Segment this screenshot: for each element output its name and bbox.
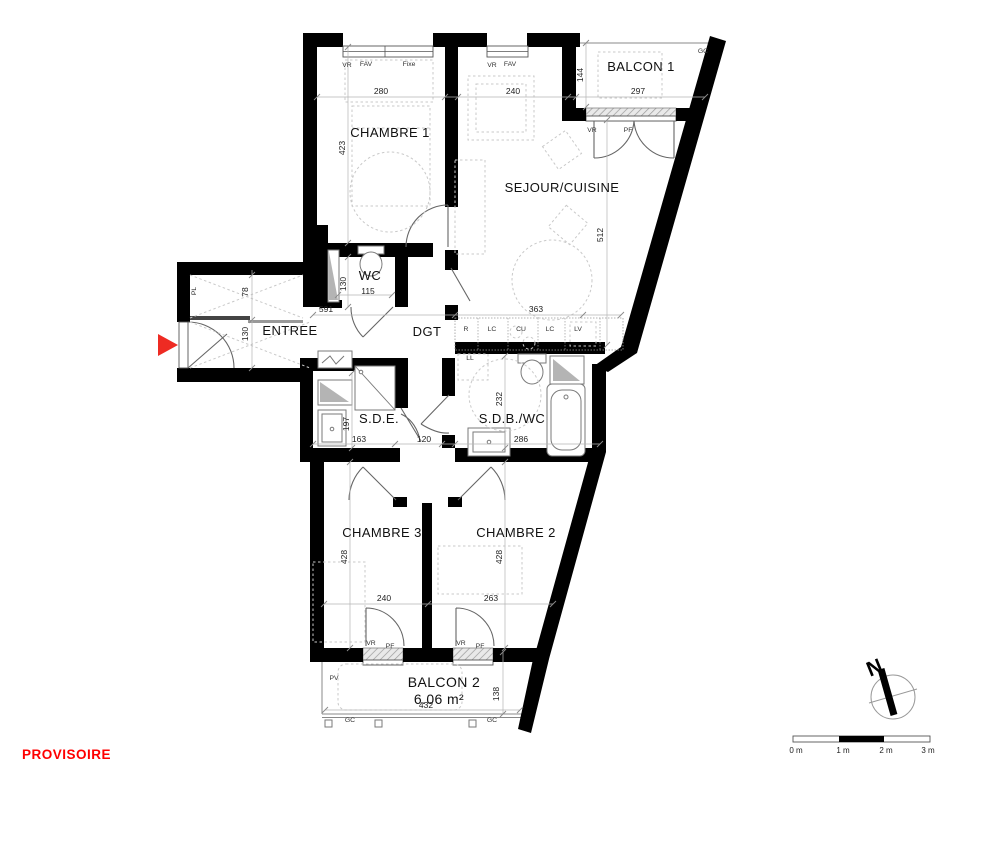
label-dgt: DGT [413, 324, 442, 339]
label-chambre3: CHAMBRE 3 [342, 525, 421, 540]
tag-kitchen-r: R [464, 326, 469, 333]
dim-wc-height: 130 [338, 277, 348, 291]
door-sejour [451, 268, 470, 301]
label-balcon1: BALCON 1 [607, 59, 675, 74]
tag-vr-chambre2-door: VR [456, 640, 466, 647]
closet-sliding-door [190, 316, 250, 320]
dim-entree-height: 130 [240, 327, 250, 341]
dim-chambre1-height: 423 [337, 141, 347, 155]
sejour-armchair2 [548, 205, 587, 244]
dim-balcon1-depth: 144 [575, 68, 585, 82]
tag-pf-chambre3-door: PF [386, 643, 395, 650]
tag-kitchen-lv: LV [574, 326, 582, 333]
tag-gc-balcon2-right: GC [487, 717, 497, 724]
door-sdb [421, 395, 449, 433]
dim-chambre1-width: 280 [374, 86, 388, 96]
door-entrance [188, 322, 234, 368]
tag-pf-balcon1-door: PF [624, 127, 633, 134]
dim-sejour-height: 512 [595, 228, 605, 242]
chambre1-rug [350, 152, 430, 232]
electrical-panel [318, 351, 352, 368]
walls [177, 33, 726, 733]
tag-gc-balcon1: GC [698, 48, 708, 55]
label-entree: ENTREE [262, 323, 317, 338]
tag-kitchen-lc1: LC [488, 326, 497, 333]
label-closet: PL [191, 287, 198, 296]
dim-sde-height: 197 [341, 417, 351, 431]
door-chambre1 [406, 205, 448, 247]
label-wc: WC [359, 268, 381, 283]
sejour-armchair1 [543, 131, 582, 170]
door-wc [351, 307, 393, 337]
chambre2-bed [438, 546, 522, 594]
sdb-toilet-bowl [521, 360, 543, 384]
dim-corridor: 591 [319, 304, 333, 314]
scale-label-1: 1 m [836, 746, 850, 755]
sejour-sofa [455, 160, 485, 254]
sejour-rug [512, 240, 592, 320]
chambre1-wardrobe [345, 60, 433, 102]
tag-fav-window2: FAV [504, 61, 517, 68]
entrance-threshold [179, 322, 188, 368]
label-chambre2: CHAMBRE 2 [476, 525, 555, 540]
chambre1-bed [352, 106, 430, 206]
dim-wc-width: 115 [361, 286, 375, 296]
tag-kitchen-cu: CU [516, 326, 526, 333]
dim-sejour-width-top: 240 [506, 86, 520, 96]
dim-sde-width: 163 [352, 434, 366, 444]
door-chambre2 [458, 467, 505, 500]
dim-sdb-height: 232 [494, 392, 504, 406]
tag-vr-balcon1-door: VR [587, 127, 597, 134]
floorplan-page: CHAMBRE 1 SEJOUR/CUISINE BALCON 1 WC ENT… [0, 0, 1000, 857]
sejour-table [468, 76, 534, 140]
scale-bar: 0 m 1 m 2 m 3 m [789, 736, 935, 755]
label-sdb-wc: S.D.B./WC [479, 411, 545, 426]
entrance-arrow [158, 334, 178, 356]
compass: N [863, 654, 917, 719]
door-balcon1-right [634, 121, 674, 158]
dim-chambre3-height: 428 [339, 550, 349, 564]
label-chambre1: CHAMBRE 1 [350, 125, 429, 140]
tag-fav-window1: FAV [360, 61, 373, 68]
dim-balcon2-depth: 138 [491, 687, 501, 701]
tag-gc-balcon2-left: GC [345, 717, 355, 724]
dim-closet-depth: 78 [240, 287, 250, 297]
tag-ll: LL [466, 355, 474, 362]
provisoire-stamp: PROVISOIRE [22, 747, 111, 762]
tag-fixe-window1: Fixe [403, 61, 416, 68]
scale-label-0: 0 m [789, 746, 803, 755]
floorplan-drawing: CHAMBRE 1 SEJOUR/CUISINE BALCON 1 WC ENT… [0, 0, 1000, 857]
label-sde: S.D.E. [359, 411, 399, 426]
dim-sdb-width: 286 [514, 434, 528, 444]
tag-pv-balcon2: PV [329, 675, 339, 682]
door-chambre3 [349, 467, 396, 500]
label-balcon2: BALCON 2 [408, 674, 480, 690]
scale-label-2: 2 m [879, 746, 893, 755]
tag-pf-chambre2-door: PF [476, 643, 485, 650]
tag-kitchen-lc2: LC [546, 326, 555, 333]
tag-vr-window2: VR [487, 62, 497, 69]
scale-label-3: 3 m [921, 746, 935, 755]
dim-chambre2-width: 263 [484, 593, 498, 603]
dim-chambre2-height: 428 [494, 550, 504, 564]
dim-balcon1-width: 297 [631, 86, 645, 96]
dim-sejour-width-bottom: 363 [529, 304, 543, 314]
dim-chambre3-width: 240 [377, 593, 391, 603]
tag-vr-chambre3-door: VR [366, 640, 376, 647]
tag-vr-window1: VR [342, 62, 352, 69]
label-sejour-cuisine: SEJOUR/CUISINE [505, 180, 620, 195]
dim-dgt-width: 120 [417, 434, 431, 444]
dim-balcon2-width: 432 [419, 700, 433, 710]
